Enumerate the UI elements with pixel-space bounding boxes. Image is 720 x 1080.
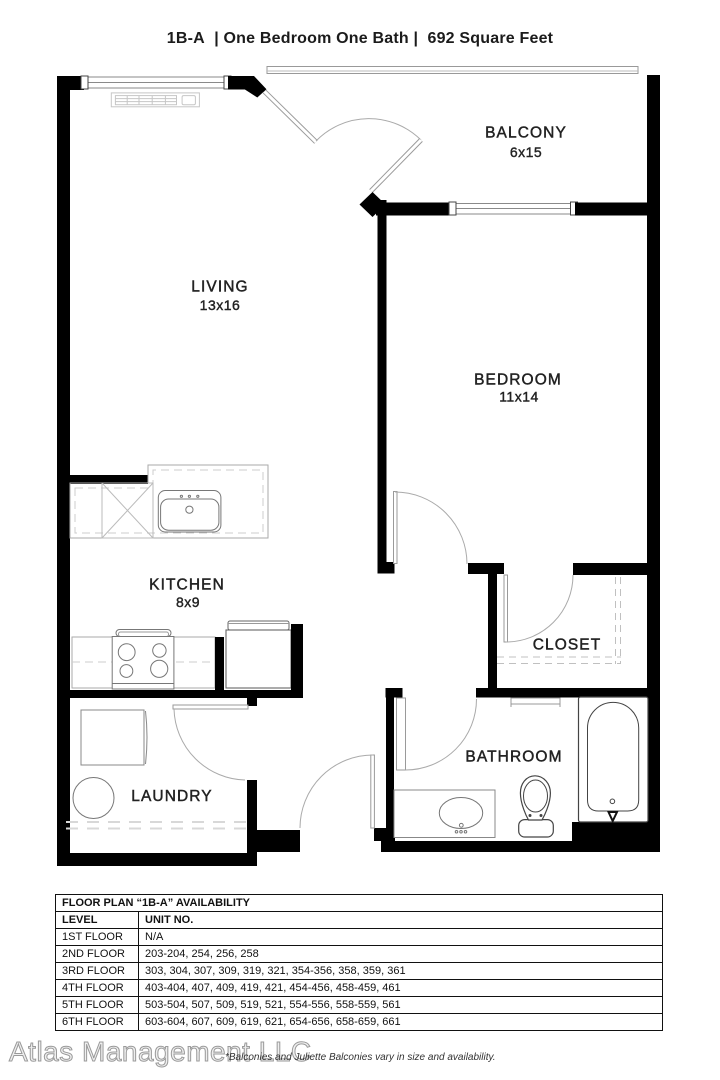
svg-text:KITCHEN: KITCHEN <box>149 577 225 594</box>
svg-text:LAUNDRY: LAUNDRY <box>131 788 213 805</box>
svg-text:BEDROOM: BEDROOM <box>474 372 562 389</box>
svg-text:6x15: 6x15 <box>510 144 542 160</box>
svg-text:11x14: 11x14 <box>499 389 539 405</box>
svg-text:CLOSET: CLOSET <box>533 637 602 654</box>
svg-text:BATHROOM: BATHROOM <box>465 749 562 766</box>
svg-text:LIVING: LIVING <box>191 279 248 296</box>
svg-text:BALCONY: BALCONY <box>485 125 567 142</box>
svg-text:13x16: 13x16 <box>200 297 241 313</box>
svg-text:8x9: 8x9 <box>176 594 200 610</box>
